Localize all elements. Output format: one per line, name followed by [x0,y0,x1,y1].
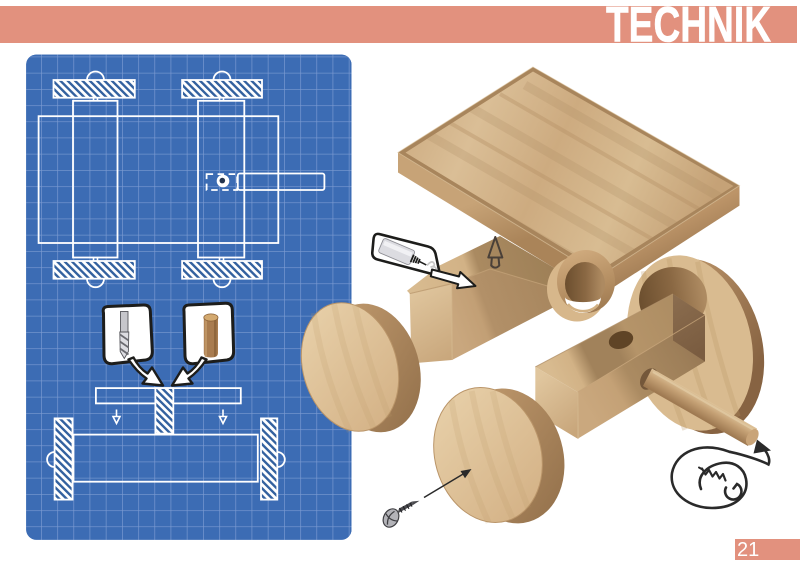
svg-text:TECHNIK: TECHNIK [606,0,771,53]
svg-text:21: 21 [737,539,759,561]
